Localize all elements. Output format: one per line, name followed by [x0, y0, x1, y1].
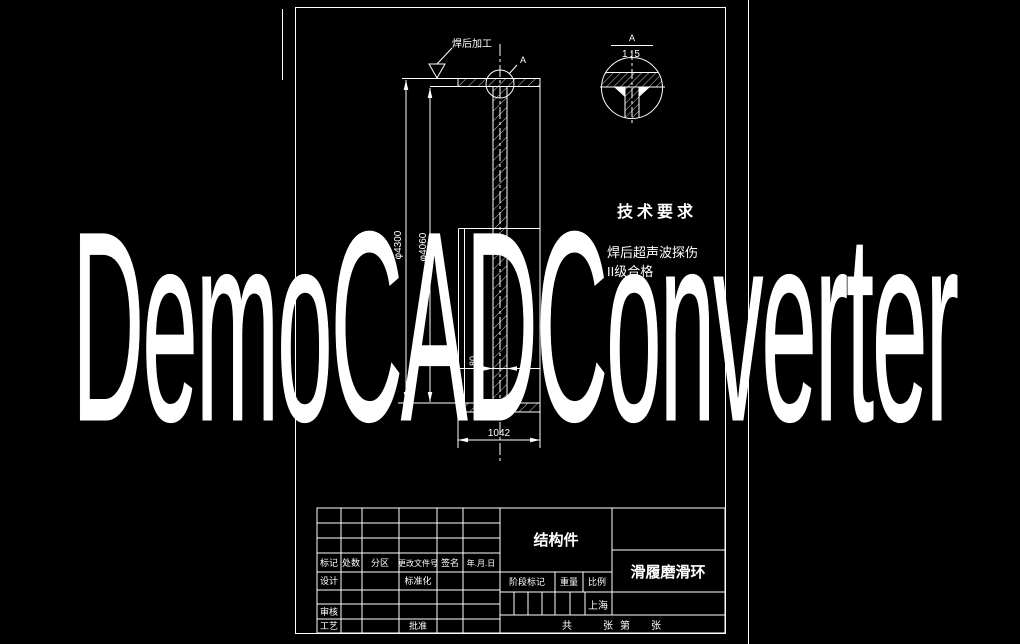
tech-req-line2: II级合格 — [607, 264, 653, 279]
watermark: DemoCADConverter — [72, 177, 958, 478]
detail-view-scale: 1:5 — [622, 49, 642, 60]
tb-label-weight: 重量 — [560, 576, 578, 587]
tb-label-standardization: 标准化 — [404, 575, 431, 586]
dim-inner-dia: φ4060 — [418, 232, 429, 261]
tb-drawing-title: 滑履磨滑环 — [630, 563, 705, 581]
detail-view-label: A — [629, 33, 635, 43]
drawing-svg: DemoCADConverter — [0, 0, 1020, 644]
tb-label-process: 工艺 — [320, 621, 338, 631]
tb-sheets-total: 共 — [562, 620, 572, 632]
tb-label-approve: 批准 — [409, 620, 427, 631]
weld-fillet-right — [639, 87, 650, 97]
tb-label-date: 年.月.日 — [467, 558, 495, 568]
detail-ref-label: A — [520, 55, 526, 65]
cad-canvas[interactable]: DemoCADConverter — [0, 0, 1020, 644]
tb-sheets-sheet2: 张 — [651, 620, 661, 632]
top-flange-section — [458, 79, 540, 87]
dim-web: 80 — [468, 356, 478, 366]
weld-note-text: 焊后加工 — [452, 38, 492, 50]
tb-label-stage-mark: 阶段标记 — [509, 576, 545, 587]
tb-label-zone: 分区 — [371, 558, 389, 568]
tb-label-signature: 签名 — [441, 557, 459, 568]
detail-ref-leader — [509, 65, 517, 74]
tb-sheets-sheet: 张 — [603, 620, 613, 632]
dim-outer-dia: φ4300 — [393, 230, 404, 259]
watermark-text: DemoCADConverter — [72, 177, 958, 478]
weld-note-leader — [437, 48, 452, 64]
dim-width: 1042 — [488, 428, 511, 439]
tech-req-line1: 焊后超声波探伤 — [607, 245, 698, 260]
bottom-flange-section — [458, 403, 540, 412]
tech-req-title: 技术要求 — [617, 202, 697, 221]
tb-label-scale: 比例 — [588, 576, 606, 587]
weld-fillet-left — [614, 87, 625, 97]
title-block-texts: 标记 处数 分区 更改文件号 签名 年.月.日 设计 标准化 审核 工艺 批准 … — [320, 531, 706, 632]
tb-label-change-file: 更改文件号 — [398, 558, 438, 568]
tb-scale-cell-value: 上海 — [588, 599, 608, 612]
tb-part-type: 结构件 — [533, 531, 578, 549]
web-section — [493, 87, 507, 404]
surface-finish-icon — [429, 64, 445, 78]
tb-sheets-no: 第 — [620, 619, 630, 632]
tb-label-design: 设计 — [320, 575, 338, 586]
tb-label-mark: 标记 — [320, 557, 338, 568]
tb-label-count: 处数 — [342, 557, 360, 568]
tb-label-review: 审核 — [320, 606, 338, 617]
